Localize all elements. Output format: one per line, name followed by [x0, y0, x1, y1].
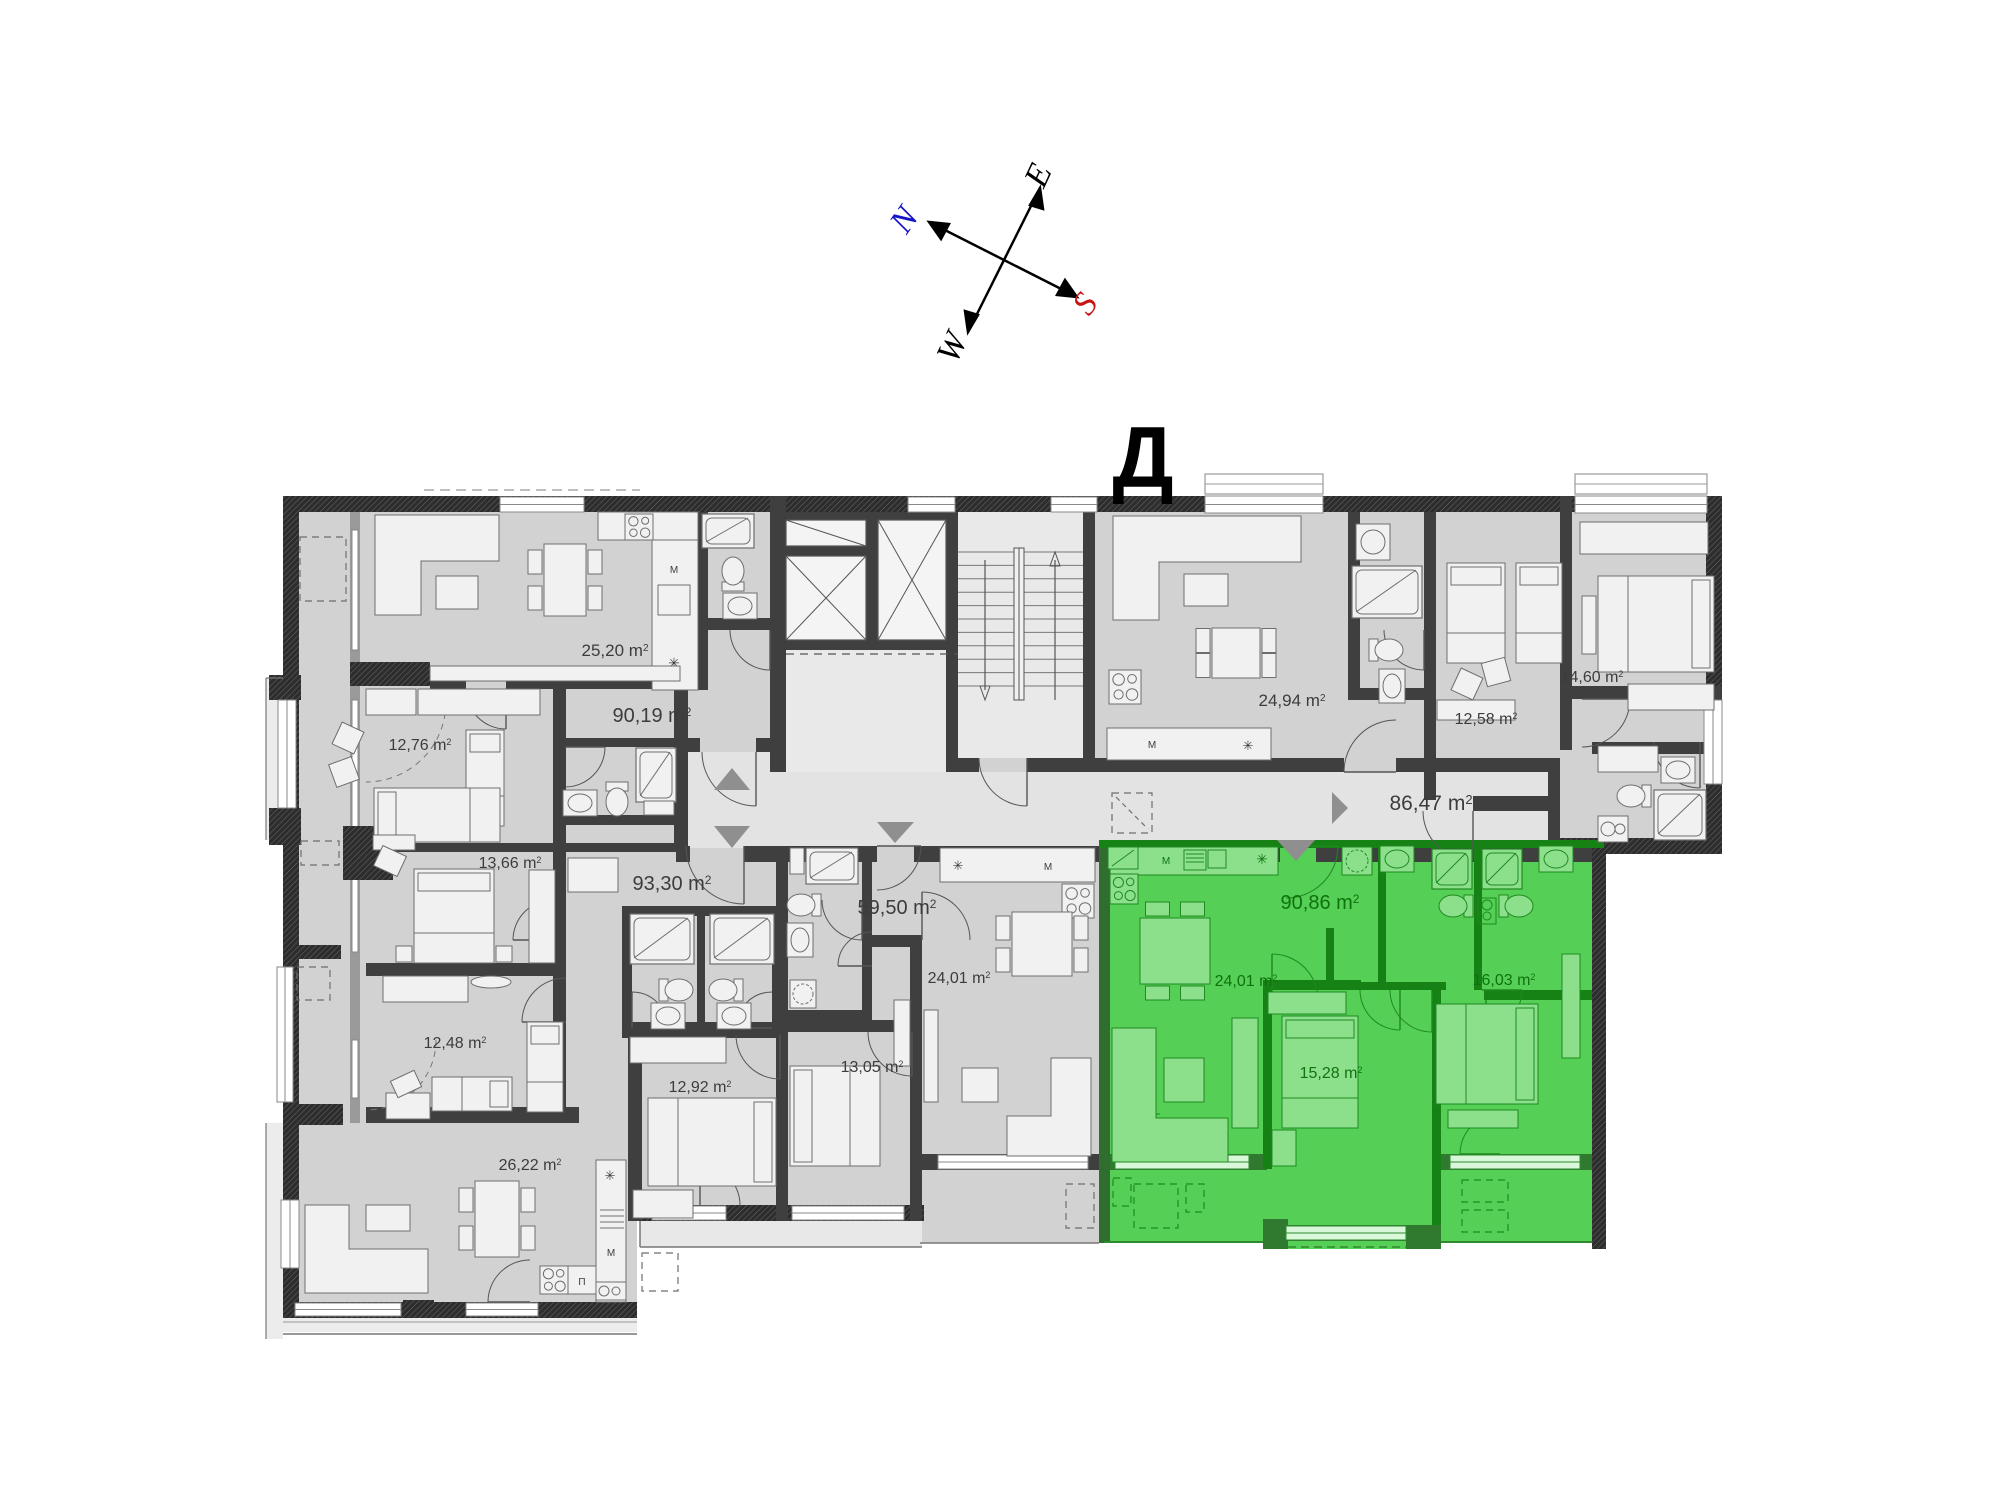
svg-text:M: M [1044, 862, 1052, 873]
svg-text:13,66 m2: 13,66 m2 [479, 855, 542, 872]
svg-text:26,22 m2: 26,22 m2 [499, 1157, 562, 1174]
svg-text:M: M [1148, 740, 1156, 751]
svg-text:M: M [607, 1248, 615, 1259]
svg-text:15,28 m2: 15,28 m2 [1300, 1065, 1363, 1082]
svg-text:П: П [578, 1277, 585, 1288]
svg-text:86,47 m2: 86,47 m2 [1389, 792, 1472, 815]
svg-text:90,86 m2: 90,86 m2 [1281, 892, 1360, 914]
svg-text:12,76 m2: 12,76 m2 [389, 737, 452, 754]
svg-text:59,50 m2: 59,50 m2 [858, 897, 937, 919]
svg-text:14,60 m2: 14,60 m2 [1561, 669, 1624, 686]
svg-text:90,19 m2: 90,19 m2 [613, 705, 692, 727]
svg-text:16,03 m2: 16,03 m2 [1473, 972, 1536, 989]
svg-text:13,05 m2: 13,05 m2 [841, 1059, 904, 1076]
svg-text:M: M [1162, 856, 1170, 867]
svg-text:✳: ✳ [1243, 738, 1254, 753]
svg-text:24,94 m2: 24,94 m2 [1259, 691, 1326, 710]
svg-text:24,01 m2: 24,01 m2 [928, 970, 991, 987]
svg-text:✳: ✳ [1256, 851, 1268, 867]
svg-text:24,01 m2: 24,01 m2 [1215, 973, 1278, 990]
svg-text:✳: ✳ [953, 858, 964, 873]
svg-text:✳: ✳ [605, 1168, 616, 1183]
svg-text:12,58 m2: 12,58 m2 [1455, 711, 1518, 728]
svg-text:93,30 m2: 93,30 m2 [633, 873, 712, 895]
svg-text:12,92 m2: 12,92 m2 [669, 1079, 732, 1096]
svg-text:12,48 m2: 12,48 m2 [424, 1035, 487, 1052]
svg-text:M: M [670, 565, 678, 576]
svg-text:25,20 m2: 25,20 m2 [582, 641, 649, 660]
svg-text:Д: Д [1112, 410, 1173, 506]
